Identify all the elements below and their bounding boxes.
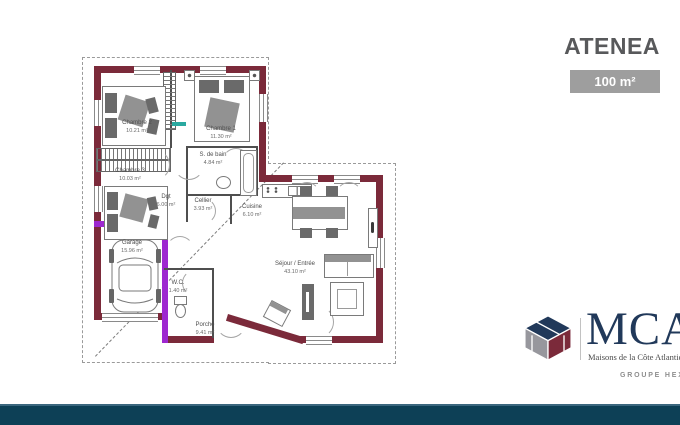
room-label: Chambre 2 10.21 m² bbox=[110, 120, 164, 134]
washbasin bbox=[216, 176, 231, 189]
coffee-table bbox=[330, 282, 364, 316]
dining-table bbox=[292, 196, 348, 230]
room-label: Porche 9.41 m² bbox=[184, 322, 226, 336]
nightstand bbox=[184, 70, 195, 81]
room-label: Cuisine 6.10 m² bbox=[231, 204, 273, 218]
partition bbox=[164, 268, 214, 270]
floor-plan: Chambre 2 10.21 m² Chambre 1 11.30 m² Ch… bbox=[0, 0, 480, 425]
wall-cabinet bbox=[368, 208, 378, 248]
room-label: Chambre 3 10.03 m² bbox=[103, 168, 157, 182]
room-label: W.C. 1.40 m² bbox=[163, 280, 193, 294]
chair bbox=[326, 186, 338, 196]
surface-badge: 100 m² bbox=[570, 70, 660, 93]
window bbox=[259, 94, 268, 122]
room-label: Chambre 1 11.30 m² bbox=[194, 126, 248, 140]
page-title: ATENEA bbox=[556, 33, 668, 60]
page: Chambre 2 10.21 m² Chambre 1 11.30 m² Ch… bbox=[0, 0, 680, 425]
window bbox=[200, 66, 226, 75]
door-arc bbox=[166, 236, 194, 264]
room-label: Cellier 3.93 m² bbox=[182, 198, 224, 212]
porch-bottom-wall bbox=[162, 336, 214, 343]
stove bbox=[264, 186, 280, 194]
bathtub bbox=[240, 150, 257, 196]
room-label: Garage 15.96 m² bbox=[109, 240, 155, 254]
cube-logo-icon bbox=[521, 314, 575, 362]
nightstand bbox=[249, 70, 260, 81]
window bbox=[134, 66, 160, 75]
room-label: S. de bain 4.84 m² bbox=[190, 152, 236, 166]
exterior-wall-top bbox=[94, 66, 266, 73]
brand-name: MCA bbox=[586, 302, 680, 356]
logo-divider bbox=[580, 318, 581, 360]
bedroom1-right-wall bbox=[259, 66, 266, 182]
toilet bbox=[175, 304, 186, 318]
chair bbox=[300, 228, 312, 238]
window bbox=[94, 186, 103, 212]
partition bbox=[188, 146, 258, 148]
room-label: Séjour / Entrée 43.10 m² bbox=[266, 261, 324, 275]
sofa bbox=[324, 254, 374, 278]
brand-tagline: Maisons de la Côte Atlantique bbox=[588, 352, 680, 362]
teal-marker bbox=[172, 122, 186, 126]
brand-group: GROUPE HEXA bbox=[620, 372, 680, 379]
chair bbox=[300, 186, 312, 196]
living-top-wall bbox=[259, 175, 383, 182]
chair bbox=[326, 228, 338, 238]
footer-bar bbox=[0, 404, 680, 425]
double-bed bbox=[102, 86, 166, 146]
room-label: Dgt 6.00 m² bbox=[152, 194, 180, 208]
tv-console bbox=[302, 284, 314, 320]
